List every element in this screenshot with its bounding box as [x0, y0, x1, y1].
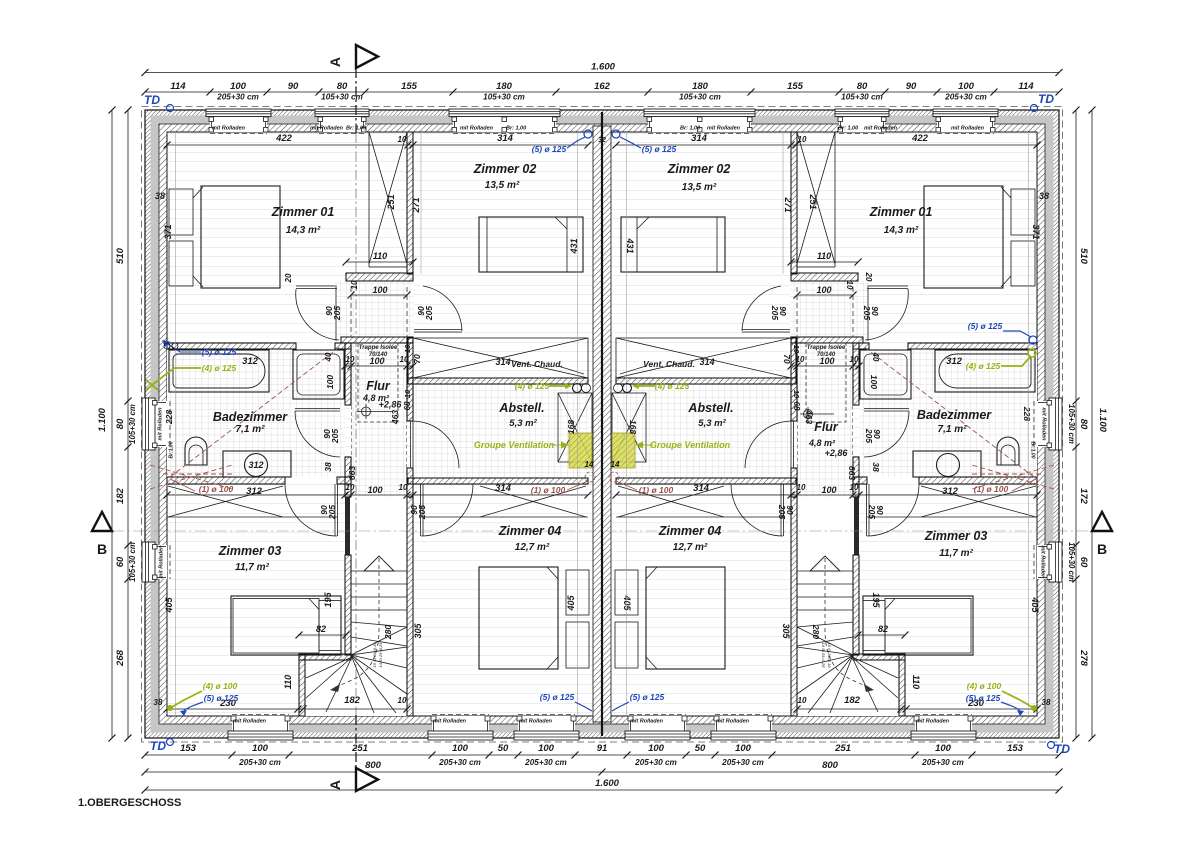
svg-text:(1) ø 100: (1) ø 100 [639, 485, 674, 495]
svg-text:100: 100 [648, 743, 665, 754]
svg-text:105+30 cm: 105+30 cm [1067, 542, 1076, 582]
svg-text:205: 205 [864, 428, 874, 443]
svg-text:205+30 cm: 205+30 cm [721, 758, 764, 767]
svg-text:463: 463 [390, 410, 400, 425]
svg-text:Trappe Isolée: Trappe Isolée [807, 345, 846, 351]
svg-text:14 St 25=0,25: 14 St 25=0,25 [378, 642, 383, 668]
svg-text:10: 10 [403, 389, 412, 398]
svg-text:105+30 cm: 105+30 cm [483, 93, 525, 102]
svg-text:Badezimmer: Badezimmer [917, 408, 992, 422]
svg-text:mit Rolladen: mit Rolladen [310, 126, 344, 132]
svg-text:7,1 m²: 7,1 m² [236, 424, 266, 435]
svg-text:15 St 19=0,19: 15 St 19=0,19 [372, 642, 377, 668]
svg-text:Groupe Ventilation: Groupe Ventilation [650, 440, 731, 450]
svg-text:10: 10 [403, 344, 412, 353]
svg-text:38: 38 [871, 462, 881, 472]
svg-text:(1) ø 100: (1) ø 100 [531, 485, 566, 495]
svg-text:10: 10 [797, 483, 806, 492]
svg-text:314: 314 [497, 133, 514, 144]
svg-text:14 St 25=0,25: 14 St 25=0,25 [821, 642, 826, 668]
svg-text:180: 180 [692, 81, 709, 92]
svg-text:314: 314 [691, 133, 708, 144]
svg-text:mit Rolladen: mit Rolladen [1040, 545, 1046, 579]
svg-text:mit Rolladen: mit Rolladen [519, 719, 553, 725]
svg-text:mit Rolladen: mit Rolladen [433, 719, 467, 725]
svg-text:14,3 m²: 14,3 m² [286, 225, 321, 236]
svg-text:105+30 cm: 105+30 cm [128, 404, 137, 444]
svg-text:14,3 m²: 14,3 m² [884, 225, 919, 236]
svg-text:(4) ø 125: (4) ø 125 [515, 381, 550, 391]
svg-text:663: 663 [347, 466, 357, 480]
svg-text:10: 10 [792, 345, 801, 354]
svg-text:mit Rolladen: mit Rolladen [460, 126, 494, 132]
svg-text:(5) ø 125: (5) ø 125 [966, 693, 1001, 703]
svg-text:205: 205 [770, 305, 780, 320]
svg-text:10: 10 [398, 135, 407, 144]
svg-text:B: B [97, 541, 107, 557]
svg-text:100: 100 [452, 743, 469, 754]
svg-text:153: 153 [180, 743, 197, 754]
svg-text:280: 280 [383, 625, 393, 640]
svg-text:Zimmer 03: Zimmer 03 [924, 529, 988, 543]
svg-text:10: 10 [850, 483, 859, 492]
svg-text:663: 663 [847, 466, 857, 480]
svg-text:800: 800 [822, 760, 839, 771]
svg-text:105+30 cm: 105+30 cm [841, 93, 883, 102]
svg-text:205: 205 [867, 504, 877, 519]
svg-text:205+30 cm: 205+30 cm [438, 758, 481, 767]
svg-text:7,1 m²: 7,1 m² [938, 424, 968, 435]
svg-text:mit Rolladen: mit Rolladen [159, 545, 165, 579]
svg-text:100: 100 [869, 375, 879, 389]
svg-text:100: 100 [958, 81, 975, 92]
svg-text:(1) ø 100: (1) ø 100 [974, 484, 1009, 494]
svg-text:Zimmer 02: Zimmer 02 [667, 162, 731, 176]
svg-text:205+30 cm: 205+30 cm [238, 758, 281, 767]
svg-text:(4) ø 100: (4) ø 100 [967, 681, 1002, 691]
svg-text:110: 110 [911, 675, 921, 689]
svg-text:305: 305 [781, 623, 791, 639]
svg-text:A: A [327, 57, 343, 67]
svg-text:251: 251 [351, 743, 368, 754]
svg-text:314: 314 [699, 357, 714, 367]
svg-text:10: 10 [792, 390, 801, 399]
svg-text:91: 91 [597, 743, 608, 754]
svg-text:Badezimmer: Badezimmer [213, 410, 288, 424]
svg-text:32: 32 [598, 137, 606, 144]
svg-text:50: 50 [695, 743, 706, 754]
svg-text:38: 38 [1042, 698, 1051, 707]
svg-text:100: 100 [538, 743, 555, 754]
svg-text:82: 82 [878, 624, 888, 634]
svg-text:(4) ø 125: (4) ø 125 [966, 361, 1001, 371]
svg-text:180: 180 [496, 81, 513, 92]
svg-text:mit Rolladen: mit Rolladen [630, 719, 664, 725]
svg-text:Abstell.: Abstell. [687, 401, 733, 415]
svg-text:Br: 1,00: Br: 1,00 [680, 126, 700, 132]
svg-text:100: 100 [369, 356, 384, 366]
svg-text:510: 510 [115, 247, 126, 264]
svg-text:Trappe Isolée: Trappe Isolée [359, 345, 398, 351]
svg-text:100: 100 [230, 81, 247, 92]
svg-text:mit Rolladen: mit Rolladen [212, 126, 246, 132]
svg-text:405: 405 [622, 594, 632, 611]
svg-text:110: 110 [283, 675, 293, 689]
svg-text:38: 38 [323, 462, 333, 472]
svg-text:280: 280 [811, 624, 821, 639]
svg-text:271: 271 [783, 196, 793, 212]
svg-text:110: 110 [373, 251, 387, 261]
svg-text:1.OBERGESCHOSS: 1.OBERGESCHOSS [78, 797, 181, 809]
svg-text:405: 405 [1030, 596, 1040, 613]
svg-text:172: 172 [1078, 488, 1089, 505]
svg-text:50: 50 [498, 743, 509, 754]
svg-text:278: 278 [1078, 649, 1089, 667]
svg-text:90: 90 [288, 81, 299, 92]
svg-text:Zimmer 02: Zimmer 02 [473, 162, 537, 176]
svg-text:105+30 cm: 105+30 cm [1067, 404, 1076, 444]
svg-text:205+30 cm: 205+30 cm [216, 93, 259, 102]
svg-text:mit Rolladen: mit Rolladen [951, 126, 985, 132]
svg-text:Flur: Flur [814, 420, 839, 434]
svg-text:195: 195 [871, 592, 881, 608]
svg-text:(5) ø 125: (5) ø 125 [540, 692, 575, 702]
svg-text:12,7 m²: 12,7 m² [515, 542, 550, 553]
svg-text:1.100: 1.100 [97, 407, 108, 431]
svg-text:305: 305 [413, 623, 423, 639]
svg-text:371: 371 [1031, 224, 1041, 239]
svg-text:(5) ø 125: (5) ø 125 [532, 144, 567, 154]
svg-text:Zimmer 04: Zimmer 04 [498, 524, 562, 538]
svg-text:228: 228 [164, 410, 174, 425]
svg-text:TD: TD [1038, 92, 1054, 106]
svg-text:312: 312 [248, 460, 263, 470]
svg-text:268: 268 [115, 649, 126, 667]
svg-text:162: 162 [594, 81, 611, 92]
svg-text:Flur: Flur [366, 379, 391, 393]
svg-text:80: 80 [857, 81, 868, 92]
svg-text:70: 70 [782, 354, 792, 364]
svg-text:(4) ø 125: (4) ø 125 [655, 381, 690, 391]
svg-text:13,5 m²: 13,5 m² [682, 182, 717, 193]
svg-text:mit Rolladen: mit Rolladen [233, 719, 267, 725]
svg-text:Br:1,00: Br:1,00 [169, 441, 175, 458]
svg-text:4,8 m²: 4,8 m² [808, 438, 836, 448]
svg-text:14: 14 [585, 460, 594, 469]
svg-text:205+30 cm: 205+30 cm [634, 758, 677, 767]
svg-text:114: 114 [1018, 81, 1034, 92]
svg-text:38: 38 [155, 191, 165, 201]
svg-text:40: 40 [871, 352, 880, 362]
svg-text:100: 100 [367, 485, 382, 495]
svg-text:1.100: 1.100 [1097, 408, 1108, 432]
svg-text:405: 405 [164, 597, 174, 614]
svg-text:TD: TD [1054, 742, 1070, 756]
svg-text:195: 195 [323, 592, 333, 608]
svg-text:Zimmer 01: Zimmer 01 [869, 205, 933, 219]
svg-text:80: 80 [115, 418, 126, 429]
svg-text:(4) ø 100: (4) ø 100 [203, 681, 238, 691]
svg-text:(5) ø 125: (5) ø 125 [642, 144, 677, 154]
svg-text:11,7 m²: 11,7 m² [235, 562, 269, 573]
svg-text:11,7 m²: 11,7 m² [939, 548, 973, 559]
svg-text:mit Rolladen: mit Rolladen [707, 126, 741, 132]
svg-text:40: 40 [324, 352, 333, 362]
svg-text:Br:1,00: Br:1,00 [1030, 442, 1036, 459]
svg-text:mit Rolladen: mit Rolladen [1041, 407, 1047, 441]
svg-text:10: 10 [350, 280, 359, 289]
svg-text:80: 80 [337, 81, 348, 92]
svg-text:100: 100 [372, 285, 387, 295]
svg-text:314: 314 [693, 483, 710, 494]
svg-text:422: 422 [911, 133, 929, 144]
svg-text:182: 182 [344, 695, 361, 706]
svg-text:168: 168 [566, 420, 576, 434]
svg-text:12,7 m²: 12,7 m² [673, 542, 708, 553]
svg-text:1.600: 1.600 [595, 778, 619, 789]
svg-text:60: 60 [115, 556, 126, 567]
svg-text:mit Rolladen: mit Rolladen [716, 719, 750, 725]
svg-text:205: 205 [332, 306, 342, 321]
svg-text:mit Rolladen: mit Rolladen [158, 407, 164, 441]
svg-text:405: 405 [566, 595, 576, 612]
svg-text:TD: TD [150, 739, 166, 753]
svg-text:Zimmer 04: Zimmer 04 [658, 524, 722, 538]
svg-text:Br: 1,00: Br: 1,00 [838, 126, 858, 132]
svg-text:15 St 19=0,19: 15 St 19=0,19 [827, 642, 832, 668]
svg-text:10: 10 [850, 355, 859, 364]
svg-text:205+30 cm: 205+30 cm [524, 758, 567, 767]
svg-text:100: 100 [935, 743, 952, 754]
svg-text:5,3 m²: 5,3 m² [509, 418, 537, 429]
svg-text:20: 20 [284, 273, 293, 283]
svg-text:+2,86: +2,86 [379, 400, 403, 410]
svg-text:314: 314 [495, 357, 510, 367]
svg-text:5,3 m²: 5,3 m² [698, 418, 726, 429]
svg-text:mit Rolladen: mit Rolladen [916, 719, 950, 725]
svg-text:100: 100 [819, 356, 834, 366]
svg-text:510: 510 [1078, 248, 1089, 265]
svg-text:205: 205 [327, 505, 337, 520]
svg-text:205: 205 [777, 504, 787, 519]
svg-text:(5) ø 125: (5) ø 125 [968, 321, 1003, 331]
svg-text:205+30 cm: 205+30 cm [921, 758, 964, 767]
svg-text:Vent. Chaud.: Vent. Chaud. [643, 359, 695, 369]
svg-text:205+30 cm: 205+30 cm [944, 93, 987, 102]
svg-text:371: 371 [163, 224, 173, 239]
svg-text:422: 422 [275, 133, 293, 144]
svg-text:100: 100 [821, 485, 836, 495]
svg-text:100: 100 [325, 375, 335, 389]
svg-text:800: 800 [365, 760, 382, 771]
svg-text:60: 60 [1078, 557, 1089, 568]
svg-text:(5) ø 125: (5) ø 125 [204, 693, 239, 703]
svg-text:1.600: 1.600 [591, 62, 615, 73]
svg-text:251: 251 [386, 194, 396, 210]
svg-text:105+30 cm: 105+30 cm [679, 93, 721, 102]
svg-text:10: 10 [399, 483, 408, 492]
svg-text:Groupe Ventilation: Groupe Ventilation [474, 440, 555, 450]
svg-text:38: 38 [1039, 191, 1049, 201]
svg-text:155: 155 [401, 81, 418, 92]
svg-text:13,5 m²: 13,5 m² [485, 180, 520, 191]
svg-text:20: 20 [864, 272, 873, 282]
svg-text:100: 100 [252, 743, 269, 754]
svg-text:10: 10 [400, 355, 409, 364]
svg-text:+2,86: +2,86 [825, 448, 849, 458]
svg-text:105+30 cm: 105+30 cm [128, 542, 137, 582]
svg-text:312: 312 [242, 356, 259, 367]
svg-text:10: 10 [346, 483, 355, 492]
svg-text:100: 100 [735, 743, 752, 754]
svg-text:312: 312 [946, 356, 963, 367]
svg-text:Zimmer 01: Zimmer 01 [271, 205, 335, 219]
svg-text:70: 70 [412, 354, 422, 364]
svg-text:251: 251 [834, 743, 851, 754]
svg-text:228: 228 [1022, 406, 1032, 421]
svg-text:251: 251 [808, 193, 818, 209]
svg-text:38: 38 [154, 698, 163, 707]
svg-text:100: 100 [816, 285, 831, 295]
svg-text:80: 80 [1078, 419, 1089, 430]
svg-text:271: 271 [411, 197, 421, 213]
svg-text:182: 182 [844, 695, 861, 706]
svg-text:14: 14 [611, 460, 620, 469]
svg-text:205: 205 [424, 306, 434, 321]
svg-text:Abstell.: Abstell. [498, 401, 544, 415]
svg-text:314: 314 [495, 483, 512, 494]
svg-text:(5) ø 125: (5) ø 125 [202, 347, 237, 357]
svg-text:10: 10 [798, 696, 807, 705]
svg-text:A: A [327, 780, 343, 790]
svg-text:110: 110 [817, 251, 831, 261]
svg-text:Br: 1,00: Br: 1,00 [506, 126, 526, 132]
svg-text:Vent. Chaud.: Vent. Chaud. [511, 359, 563, 369]
svg-text:82: 82 [316, 624, 326, 634]
svg-text:90: 90 [906, 81, 917, 92]
svg-text:153: 153 [1007, 743, 1024, 754]
svg-text:Zimmer 03: Zimmer 03 [218, 544, 282, 558]
svg-text:68: 68 [792, 402, 801, 411]
svg-text:155: 155 [787, 81, 804, 92]
svg-text:(5) ø 125: (5) ø 125 [630, 692, 665, 702]
svg-text:205: 205 [330, 429, 340, 444]
svg-text:205: 205 [417, 505, 427, 520]
svg-text:168: 168 [628, 420, 638, 434]
svg-text:68: 68 [403, 401, 412, 410]
svg-text:(4) ø 125: (4) ø 125 [202, 363, 237, 373]
svg-text:463: 463 [804, 409, 814, 424]
svg-text:(1) ø 100: (1) ø 100 [199, 484, 234, 494]
svg-text:TD: TD [144, 93, 160, 107]
svg-text:mit Rolladen: mit Rolladen [864, 126, 898, 132]
svg-text:182: 182 [115, 487, 126, 504]
svg-text:B: B [1097, 541, 1107, 557]
svg-text:10: 10 [845, 281, 854, 290]
svg-text:205: 205 [862, 305, 872, 320]
svg-text:114: 114 [170, 81, 186, 92]
svg-text:10: 10 [398, 696, 407, 705]
